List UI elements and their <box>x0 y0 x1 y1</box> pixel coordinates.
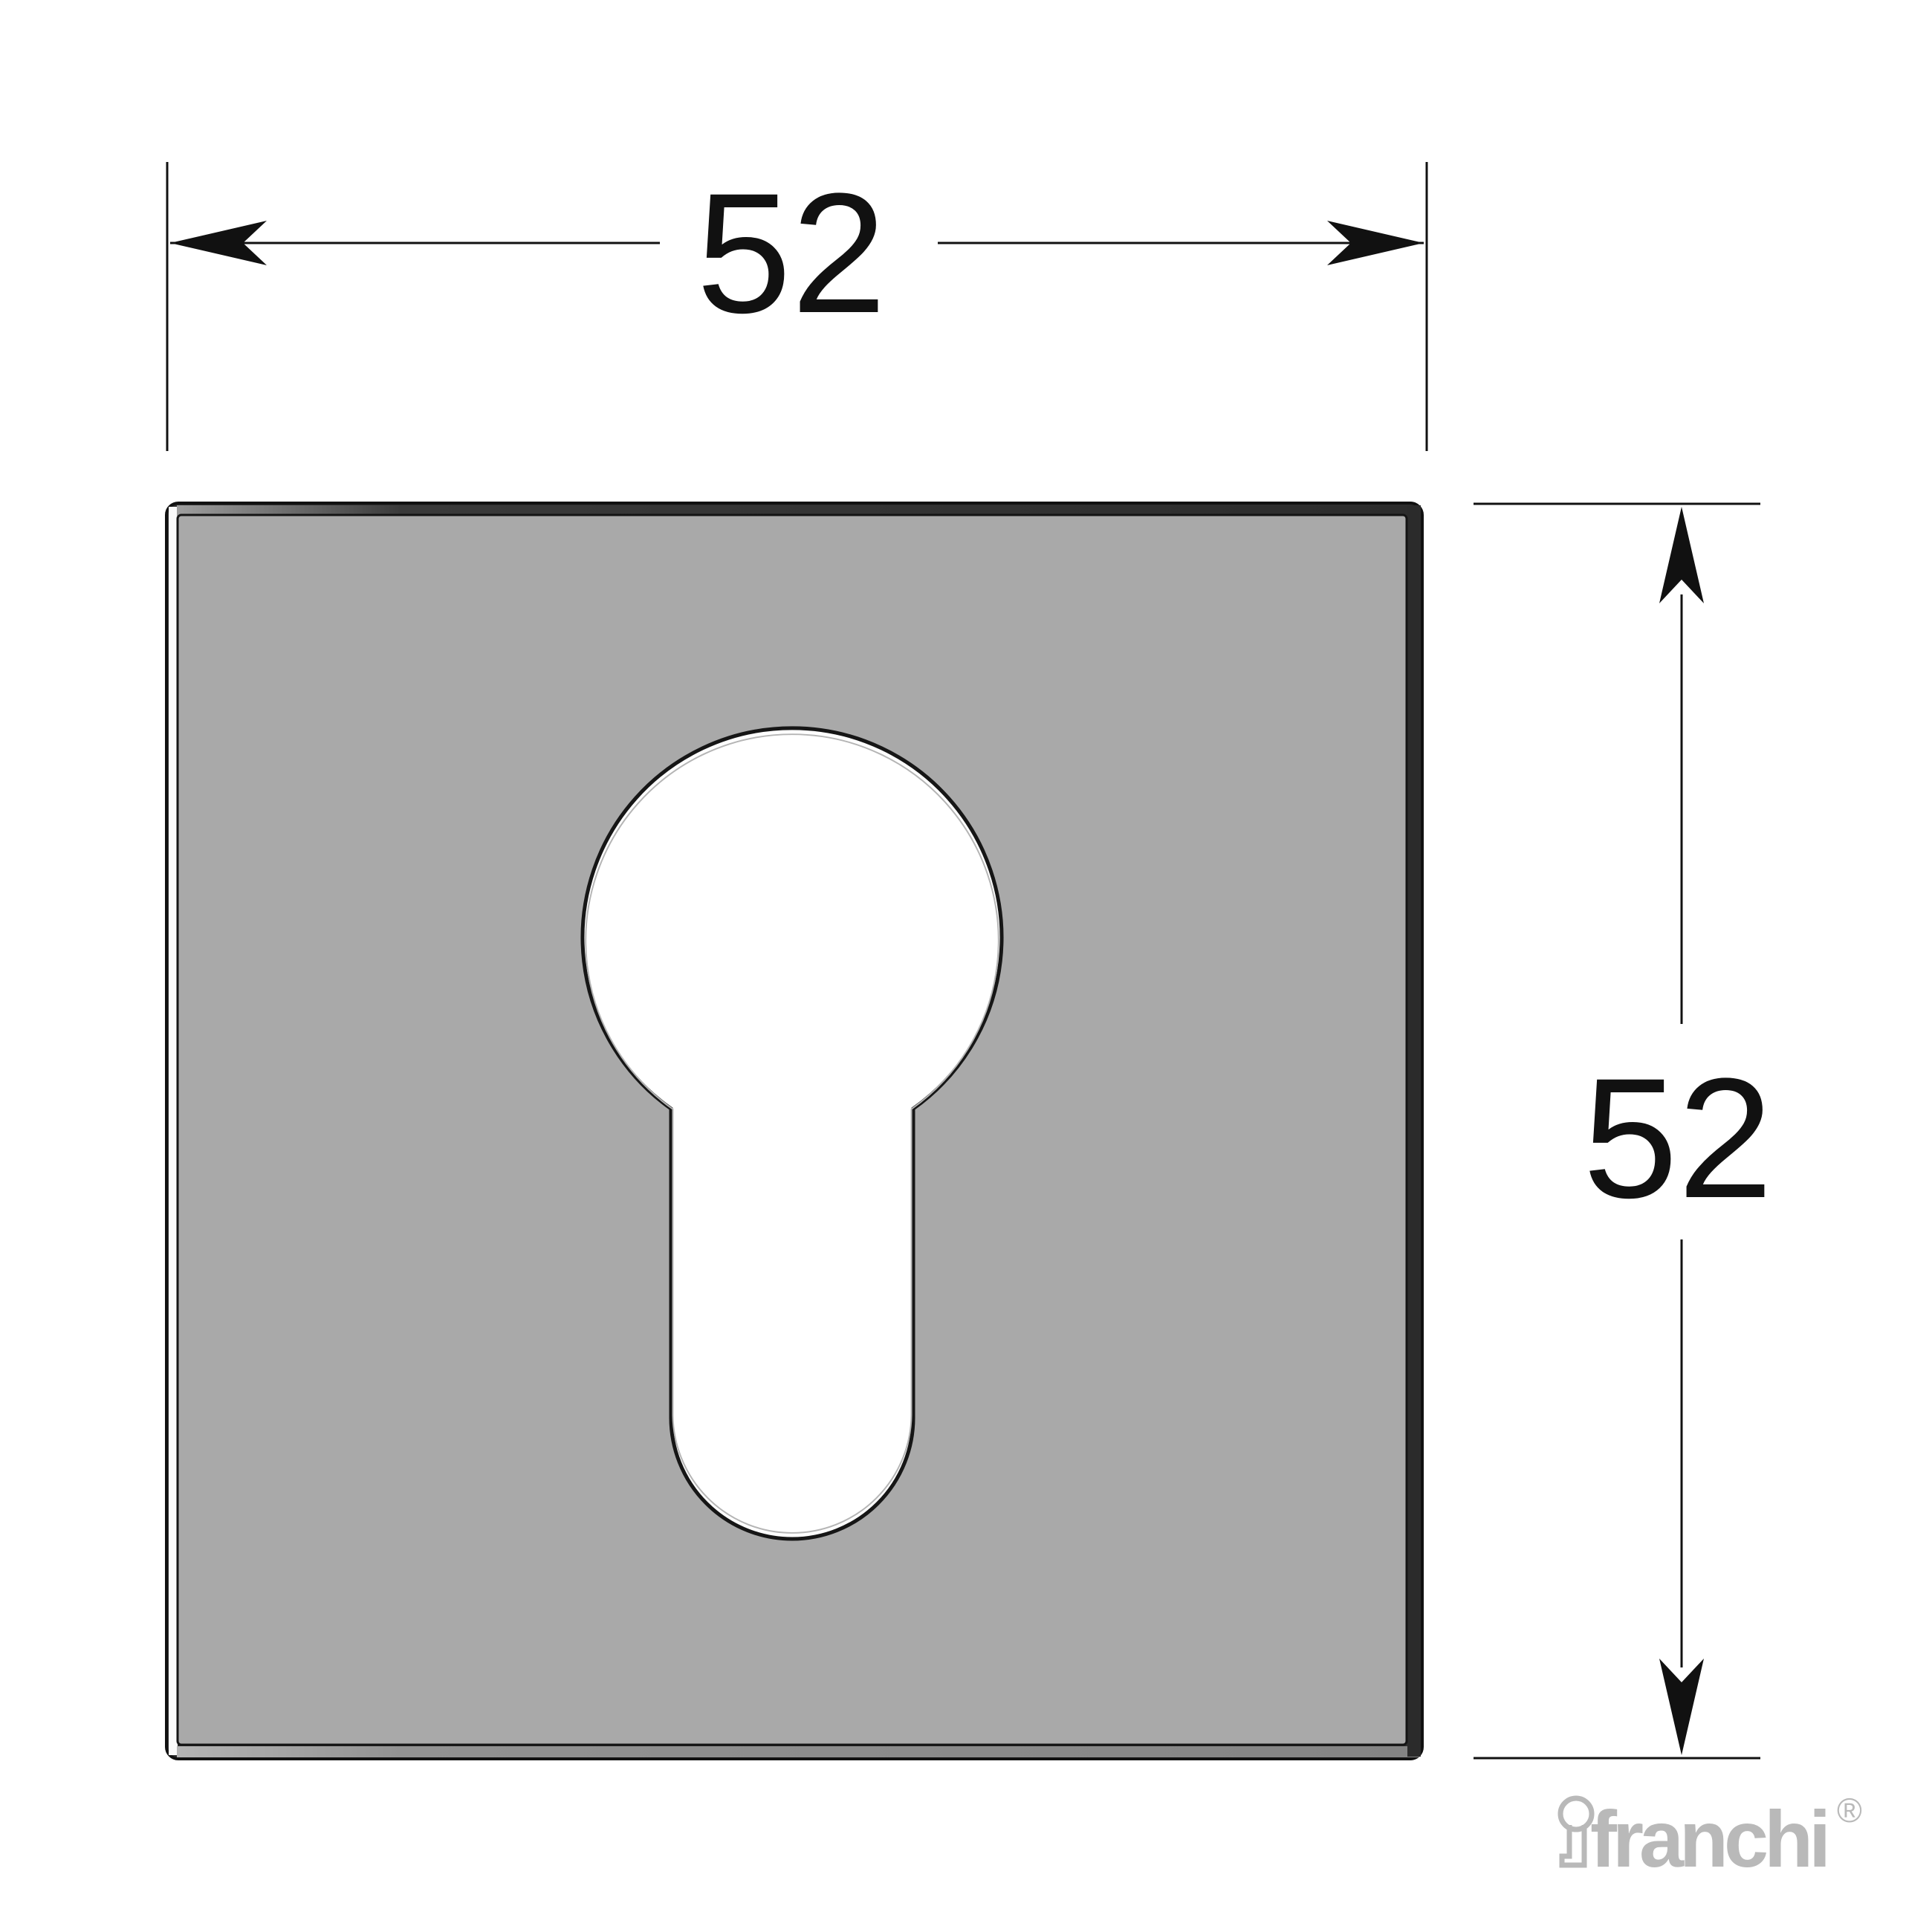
height-dimension-label: 52 <box>1583 1043 1773 1234</box>
width-dimension-label: 52 <box>696 158 886 349</box>
plate-bevel-bottom <box>177 1746 1419 1757</box>
escutcheon-plate <box>166 503 1422 1759</box>
franchi-logo: franchi ® <box>1560 1791 1862 1884</box>
plate-bevel-left <box>169 507 178 1755</box>
registered-trademark-icon: ® <box>1837 1791 1862 1829</box>
escutcheon-dimension-drawing: 52 52 franchi ® <box>0 0 1932 1932</box>
logo-brand-text: franchi <box>1590 1794 1826 1884</box>
technical-drawing-page: 52 52 franchi ® <box>0 0 1932 1932</box>
plate-bevel-right <box>1407 505 1421 1757</box>
